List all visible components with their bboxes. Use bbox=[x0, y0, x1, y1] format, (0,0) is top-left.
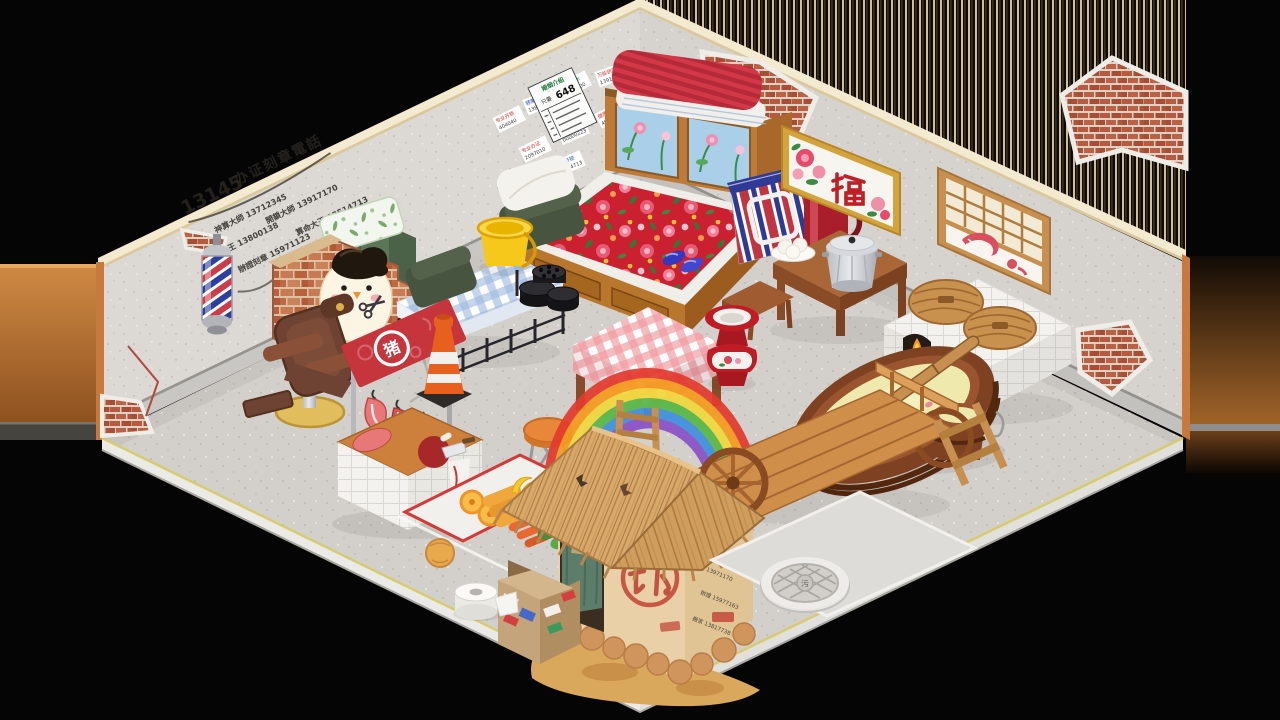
table-leg bbox=[836, 310, 845, 336]
right-wall-edge bbox=[1182, 254, 1190, 440]
rose-leaf bbox=[719, 363, 725, 366]
table-leg bbox=[898, 276, 906, 318]
headrest-button bbox=[336, 303, 344, 311]
rose-decal bbox=[724, 356, 732, 364]
right-gradient-band bbox=[1186, 256, 1280, 426]
room-scene: 13145 办证刻章電話 神算大師 13712345 疏通大王 13800138… bbox=[0, 0, 1280, 720]
spittoon-base bbox=[716, 372, 748, 386]
chick-eye bbox=[366, 285, 372, 291]
left-orange-highlight bbox=[0, 264, 98, 268]
pot-handle bbox=[875, 252, 882, 257]
bun bbox=[786, 245, 800, 259]
spittoon-inner-shade bbox=[720, 313, 744, 323]
pole-base bbox=[207, 326, 227, 335]
manhole-cover[interactable]: 污 bbox=[761, 557, 849, 612]
barber-pole[interactable] bbox=[202, 234, 232, 335]
lid-handle bbox=[992, 322, 1008, 329]
manhole-mark: 污 bbox=[801, 579, 809, 589]
left-gray-strip-edge bbox=[0, 422, 98, 425]
right-gradient-fade bbox=[1186, 431, 1280, 473]
spittoon-band bbox=[712, 352, 752, 369]
rose-decal bbox=[735, 358, 741, 364]
left-gray-strip bbox=[0, 422, 98, 440]
pot-handle bbox=[822, 252, 829, 257]
red-stamp bbox=[712, 612, 734, 622]
yellow-bucket[interactable] bbox=[478, 218, 535, 276]
roll-core bbox=[470, 589, 483, 596]
pole-glass-shine bbox=[205, 258, 211, 318]
right-gray-line bbox=[1186, 424, 1280, 431]
chick-eye bbox=[341, 285, 347, 291]
lid-handle bbox=[938, 296, 954, 303]
pot-bottom bbox=[832, 280, 872, 292]
cone-stripe bbox=[429, 352, 459, 364]
pot-lid-knob bbox=[849, 237, 856, 244]
roll-bottom bbox=[455, 604, 497, 620]
bench-leg bbox=[788, 300, 790, 328]
thermos-highlight bbox=[810, 198, 818, 248]
briquette bbox=[533, 265, 567, 283]
left-orange-block bbox=[0, 264, 98, 422]
cone-hole bbox=[437, 314, 451, 320]
bucket-inner bbox=[486, 222, 524, 235]
cone-stripe bbox=[427, 374, 462, 383]
briquette bbox=[548, 287, 580, 312]
